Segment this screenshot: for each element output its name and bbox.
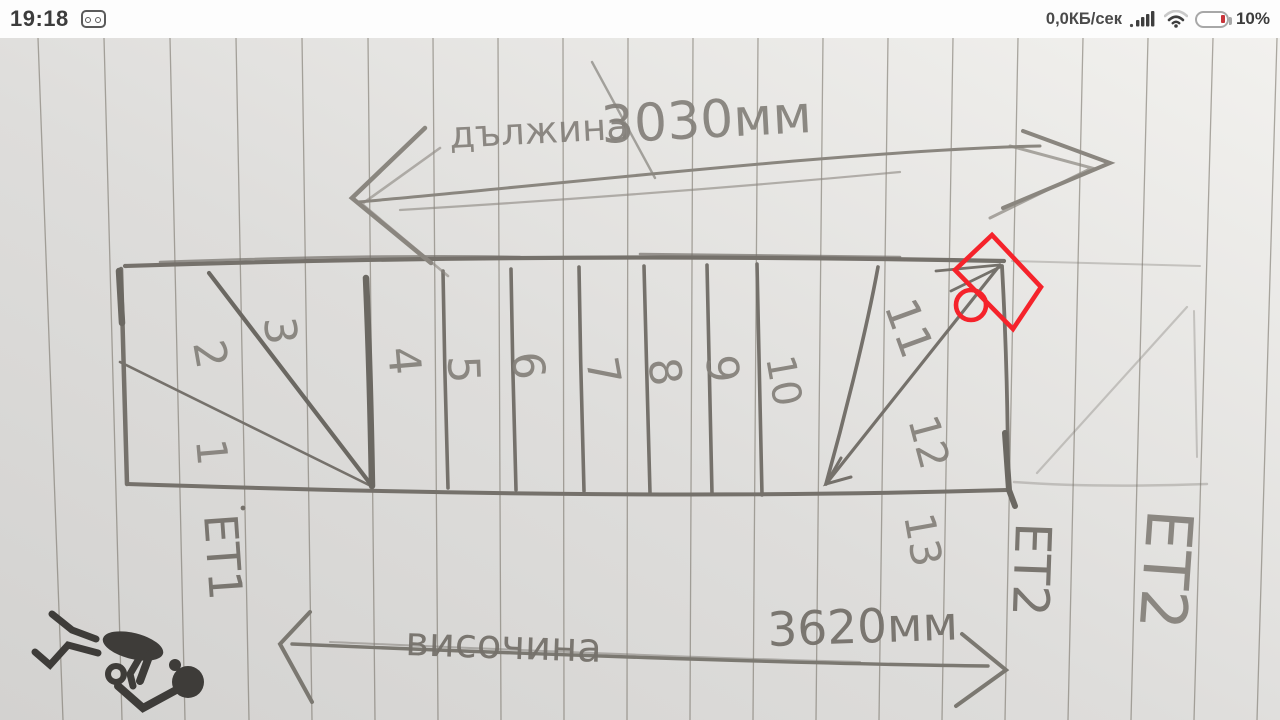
floor-end-faint-label: ЕТ2 <box>1124 507 1206 632</box>
voicemail-icon <box>81 10 106 28</box>
football-ball <box>172 666 204 698</box>
status-bar: 19:18 0,0КБ/сек 10% <box>0 0 1280 38</box>
pencil-dot <box>241 506 246 511</box>
step-number: 13 <box>894 509 952 570</box>
step-number: 9 <box>695 353 748 385</box>
signal-bars-icon <box>1129 10 1157 28</box>
phone-screen: 19:18 0,0КБ/сек 10% <box>0 0 1280 720</box>
height-label: височина <box>405 619 603 672</box>
step-number: 1 <box>186 437 237 468</box>
photo-view[interactable]: дължина 3030мм височина 3620мм ЕТ1 ЕТ2 Е… <box>0 38 1280 720</box>
step-number: 6 <box>501 350 554 382</box>
length-value: 3030мм <box>600 85 814 156</box>
staircase-sketch: дължина 3030мм височина 3620мм ЕТ1 ЕТ2 Е… <box>0 38 1280 720</box>
status-icons: 0,0КБ/сек 10% <box>1046 9 1270 29</box>
step-number: 4 <box>377 345 430 377</box>
battery-icon <box>1195 11 1229 28</box>
network-speed: 0,0КБ/сек <box>1046 10 1122 29</box>
step-number: 10 <box>756 352 810 410</box>
floor-end-label: ЕТ2 <box>1001 522 1062 618</box>
football-ball-nub <box>169 659 181 671</box>
floor-start-label: ЕТ1 <box>193 512 253 602</box>
battery-level-low <box>1221 15 1225 23</box>
battery-percent: 10% <box>1236 9 1270 29</box>
height-value: 3620мм <box>766 596 958 658</box>
clock: 19:18 <box>10 6 69 32</box>
battery-nub <box>1229 17 1232 25</box>
stair-left-wall-overdraw <box>119 271 122 323</box>
step-number: 3 <box>253 315 306 347</box>
step-number: 5 <box>437 355 489 385</box>
wifi-icon <box>1164 10 1188 28</box>
